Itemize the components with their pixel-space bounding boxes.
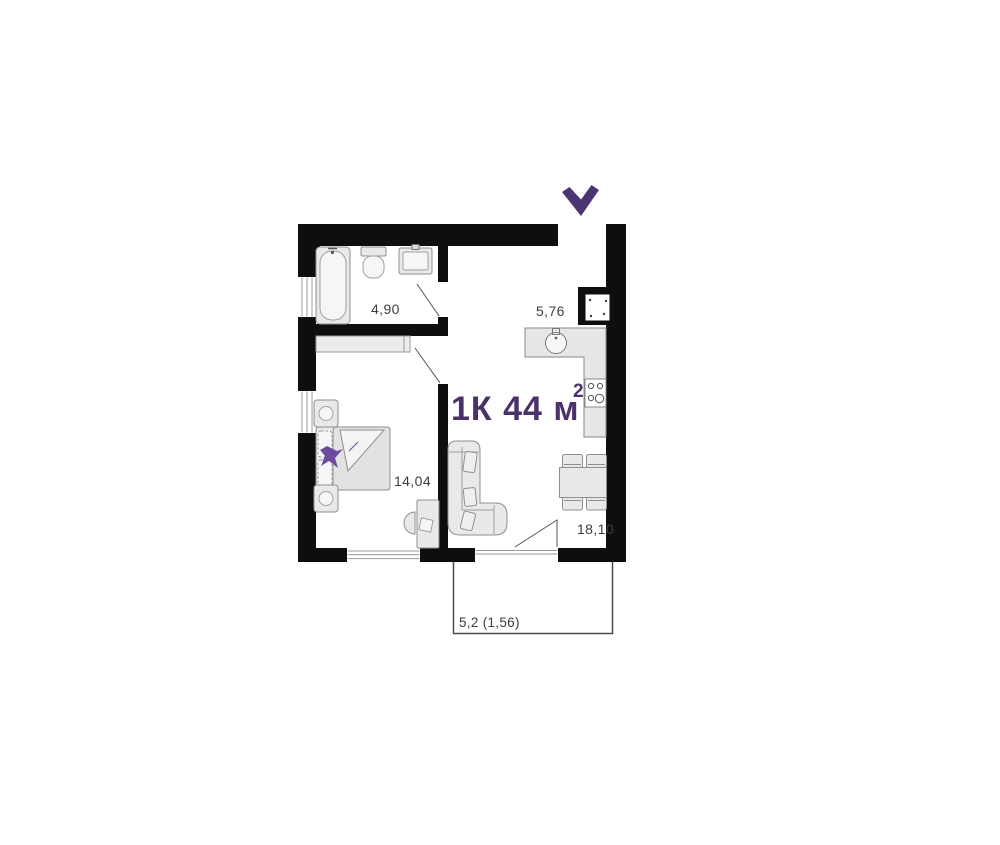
dining-set [560,455,607,511]
washbasin-icon [399,245,432,275]
wall-right [606,224,626,562]
stove-icon [585,379,606,407]
bed-icon [316,427,390,490]
wall-left-mid [298,317,316,391]
wardrobe-icon [316,336,410,352]
balcony-door-glazing [476,551,558,555]
wall-int-horizontal [316,324,448,336]
wall-bottom-mid [420,548,475,562]
floor-plan-page: 4,90 5,76 14,04 18,10 5,2 (1,56) 1К 44 м… [0,0,1000,845]
wall-left-low [298,433,316,548]
chair-icon [563,497,583,510]
bathroom-area-label: 4,90 [371,301,400,317]
wall-bottom-left [298,548,347,562]
toilet-icon [361,247,386,278]
bedroom-bottom-window [348,551,420,559]
nightstand-icon [314,400,338,427]
living-room-area-label: 18,10 [577,521,614,537]
bathroom-window [302,278,312,317]
bedroom-area-label: 14,04 [394,473,431,489]
chair-icon [563,455,583,468]
vent-shaft-icon [585,294,610,321]
chair-icon [587,455,607,468]
kitchen-area-label: 5,76 [536,303,565,319]
bedroom [314,336,439,548]
wall-int-bath-upper [438,246,448,282]
apartment-title: 1К 44 м [451,390,580,428]
entrance-chevron-icon [562,185,599,216]
desk-chair-icon [404,512,415,534]
nightstand-icon-2 [314,485,338,512]
apartment-title-sup: 2 [573,381,584,402]
bathroom-door [417,284,439,316]
balcony-area-label: 5,2 (1,56) [459,615,520,630]
wall-top [298,224,558,246]
bathtub-icon [316,247,350,324]
desk-icon [417,500,439,548]
bedroom-side-window [302,392,312,433]
dining-table-icon [560,468,607,498]
bedroom-door [415,348,440,383]
sofa-icon [448,441,507,535]
floor-plan: 4,90 5,76 14,04 18,10 5,2 (1,56) 1К 44 м… [0,0,1000,845]
balcony-door [515,520,557,547]
chair-icon [587,497,607,510]
